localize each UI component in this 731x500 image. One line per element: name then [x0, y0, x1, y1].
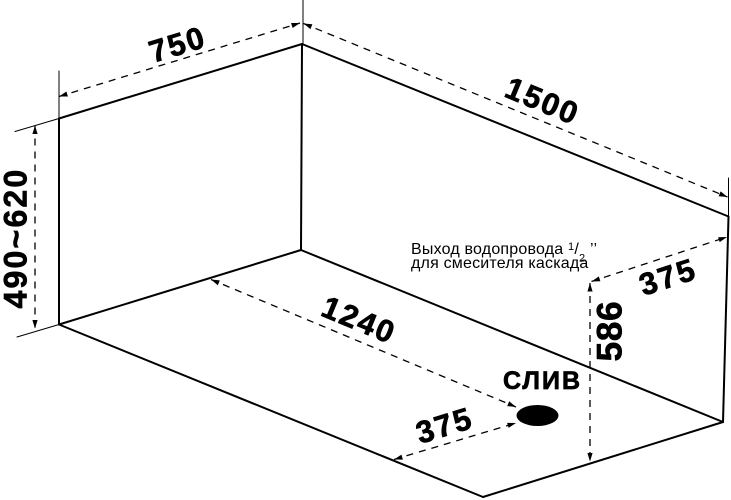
svg-text:1500: 1500	[500, 70, 585, 132]
svg-text:375: 375	[412, 400, 477, 450]
svg-text:750: 750	[145, 19, 210, 69]
svg-text:586: 586	[591, 301, 630, 362]
svg-text:490~620: 490~620	[0, 168, 34, 309]
svg-text:375: 375	[635, 251, 701, 302]
svg-text:для смесителя каскада: для смесителя каскада	[411, 255, 589, 272]
svg-text:СЛИВ: СЛИВ	[503, 367, 582, 395]
